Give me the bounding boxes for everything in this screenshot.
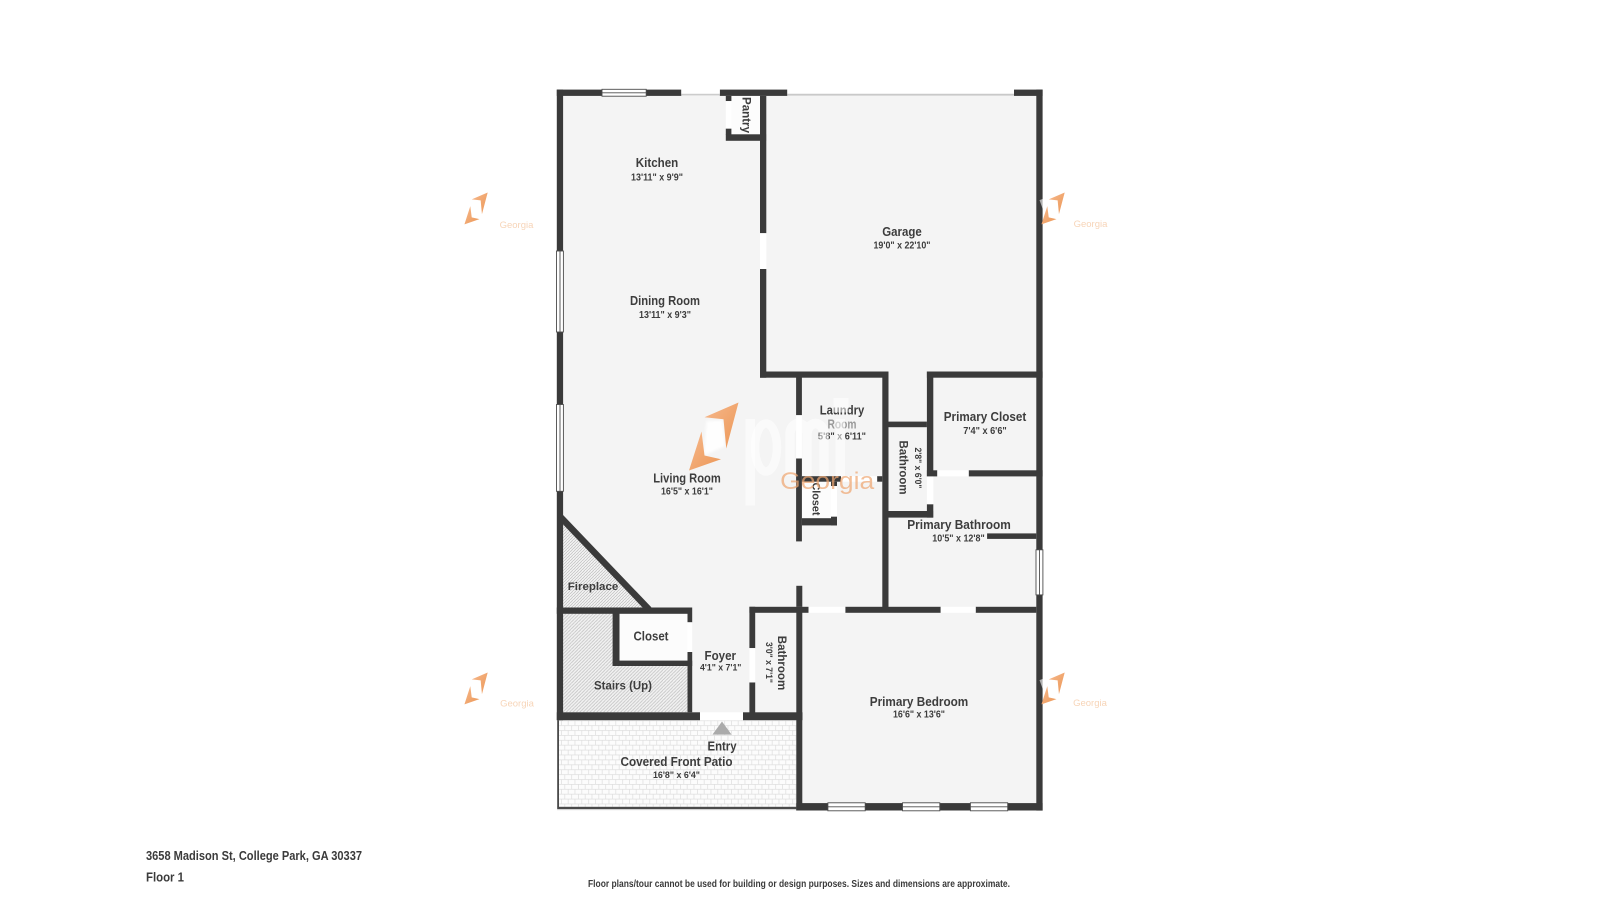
svg-text:16'5" x 16'1": 16'5" x 16'1" bbox=[661, 487, 713, 498]
svg-text:Primary Bedroom: Primary Bedroom bbox=[870, 695, 969, 709]
svg-text:Pantry: Pantry bbox=[740, 97, 752, 134]
svg-text:Georgia: Georgia bbox=[780, 468, 875, 495]
svg-text:3658 Madison St, College Park,: 3658 Madison St, College Park, GA 30337 bbox=[146, 849, 362, 863]
svg-text:Fireplace: Fireplace bbox=[568, 581, 619, 593]
svg-text:Covered Front Patio: Covered Front Patio bbox=[621, 755, 733, 769]
svg-text:Georgia: Georgia bbox=[1074, 219, 1109, 230]
svg-text:10'5" x 12'8": 10'5" x 12'8" bbox=[932, 534, 985, 545]
svg-text:Dining Room: Dining Room bbox=[630, 294, 700, 308]
svg-text:Kitchen: Kitchen bbox=[636, 156, 679, 170]
svg-text:Floor plans/tour cannot be use: Floor plans/tour cannot be used for buil… bbox=[588, 879, 1010, 890]
svg-text:13'11" x 9'3": 13'11" x 9'3" bbox=[639, 310, 691, 321]
svg-text:Georgia: Georgia bbox=[500, 699, 535, 710]
svg-text:Closet: Closet bbox=[634, 630, 670, 644]
svg-text:Georgia: Georgia bbox=[500, 220, 535, 231]
svg-text:2'8" x 6'0": 2'8" x 6'0" bbox=[913, 448, 923, 489]
svg-text:Entry: Entry bbox=[708, 740, 737, 754]
svg-text:Foyer: Foyer bbox=[705, 649, 737, 663]
svg-text:3'0" x 7'1": 3'0" x 7'1" bbox=[764, 642, 774, 683]
svg-text:Stairs (Up): Stairs (Up) bbox=[594, 681, 652, 693]
svg-text:Primary Bathroom: Primary Bathroom bbox=[907, 518, 1011, 532]
svg-text:4'1" x 7'1": 4'1" x 7'1" bbox=[700, 663, 742, 674]
svg-text:Primary Closet: Primary Closet bbox=[944, 410, 1027, 424]
svg-text:Floor 1: Floor 1 bbox=[146, 871, 184, 885]
svg-text:Bathroom: Bathroom bbox=[897, 441, 909, 495]
svg-text:16'6" x 13'6": 16'6" x 13'6" bbox=[893, 710, 945, 721]
svg-text:Bathroom: Bathroom bbox=[775, 636, 787, 691]
svg-text:13'11" x 9'9": 13'11" x 9'9" bbox=[631, 173, 683, 184]
svg-text:Living Room: Living Room bbox=[653, 472, 721, 486]
svg-text:19'0" x 22'10": 19'0" x 22'10" bbox=[874, 241, 931, 252]
svg-text:Garage: Garage bbox=[882, 225, 922, 239]
svg-text:Georgia: Georgia bbox=[1073, 698, 1108, 709]
svg-text:16'8" x 6'4": 16'8" x 6'4" bbox=[653, 770, 700, 781]
svg-text:7'4" x 6'6": 7'4" x 6'6" bbox=[963, 426, 1007, 437]
